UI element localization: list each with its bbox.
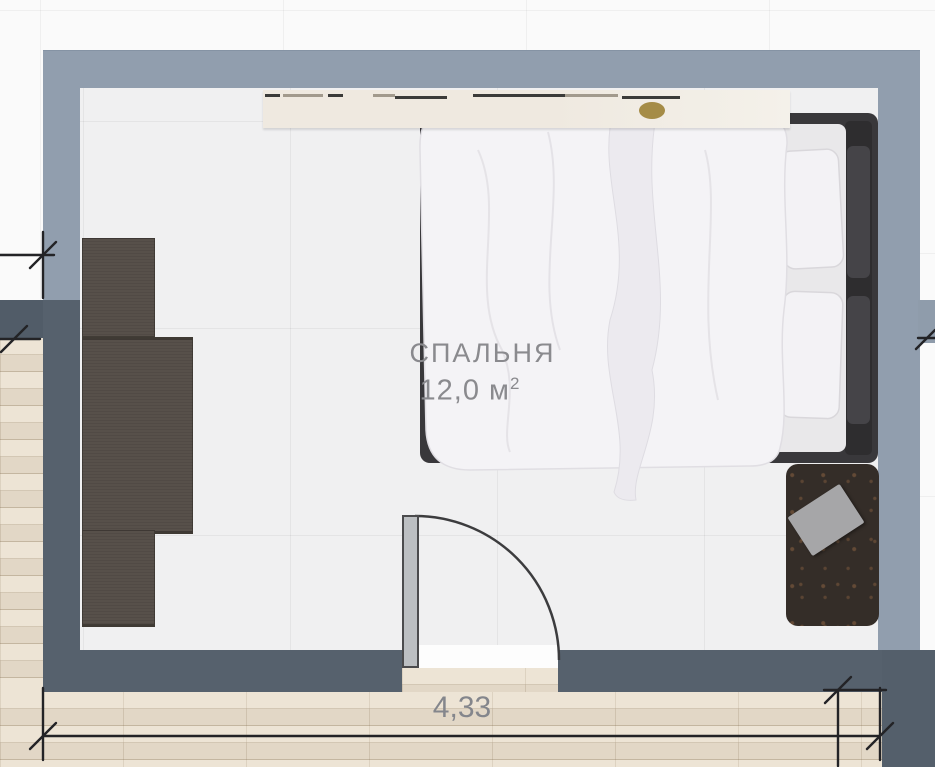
- door-threshold: [402, 668, 558, 692]
- room-area-superscript: 2: [510, 374, 520, 393]
- console-track-segment: [373, 94, 395, 97]
- wall-bottom-right: [558, 650, 882, 692]
- room-area-value: 12,0 м: [420, 375, 510, 407]
- room-floor: [80, 88, 878, 650]
- wall-stub-right: [918, 300, 935, 343]
- sideboard-console: [263, 90, 790, 128]
- console-track-segment: [473, 94, 565, 97]
- wood-floor-left: [0, 338, 43, 692]
- room-name-label: СПАЛЬНЯ: [375, 338, 590, 369]
- door-opening-floor: [402, 645, 558, 670]
- console-track-segment: [283, 94, 323, 97]
- console-track-segment: [265, 94, 280, 97]
- console-track-segment: [395, 96, 447, 99]
- dimension-width-label: 4,33: [382, 691, 542, 725]
- console-track-segment: [328, 94, 343, 97]
- console-track-segment: [622, 96, 680, 99]
- wall-left-lower: [43, 300, 80, 650]
- wall-left-upper: [43, 88, 80, 300]
- wall-right: [878, 88, 920, 650]
- wall-top: [43, 50, 920, 89]
- wall-corner-bottom-right: [882, 650, 935, 767]
- bedroom-floor-plan: СПАЛЬНЯ 12,0 м2 4,33: [0, 0, 935, 767]
- wardrobe-section-middle: [82, 337, 193, 534]
- gold-decor-bowl: [639, 102, 665, 119]
- wardrobe-section-top: [82, 238, 155, 337]
- console-track-segment: [565, 94, 618, 97]
- wall-stub-left: [0, 300, 43, 338]
- room-area-label: 12,0 м2: [370, 374, 570, 408]
- wardrobe-section-bottom: [82, 530, 155, 627]
- wall-bottom-left: [43, 650, 402, 692]
